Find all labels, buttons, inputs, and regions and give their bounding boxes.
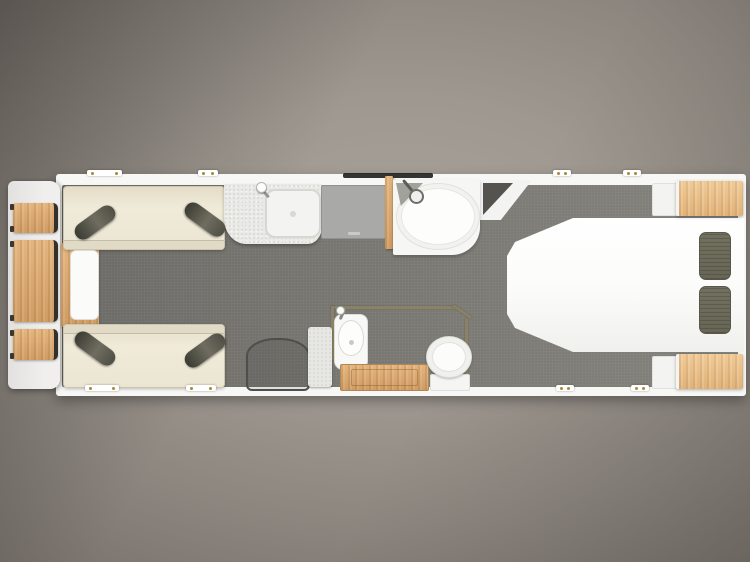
chest-tabletop (70, 250, 99, 320)
window-marker (631, 385, 649, 391)
toilet-bowl (426, 336, 472, 378)
front-locker-top (13, 203, 58, 233)
washbasin-tap-head (336, 306, 345, 315)
vanity-counter (340, 364, 429, 391)
shower-mixer (409, 189, 424, 204)
washbasin-bowl (338, 320, 364, 356)
window-marker (87, 170, 122, 176)
washroom-partition (308, 327, 332, 387)
bedside-shelf-top (652, 183, 678, 216)
washroom-wall-top (331, 306, 455, 309)
kitchen-sink (265, 189, 321, 238)
window-marker (553, 170, 571, 176)
front-locker-bottom (13, 329, 58, 360)
front-locker-middle (13, 240, 58, 322)
entrance-mat (246, 338, 310, 391)
bedside-shelf-bottom (652, 356, 678, 389)
window-marker (556, 385, 574, 391)
window-marker (198, 170, 218, 176)
bedside-locker-bottom (676, 354, 743, 389)
window-marker (623, 170, 641, 176)
kitchen-hob (321, 185, 386, 239)
window-marker (85, 385, 119, 391)
pillow (699, 286, 731, 334)
kitchen-partition (385, 176, 393, 249)
sofa-base (64, 240, 224, 249)
window-marker (186, 385, 216, 391)
kitchen-tap-head (256, 182, 267, 193)
floorplan-stage (0, 0, 750, 562)
pillow (699, 232, 731, 280)
bedside-locker-top (676, 181, 743, 216)
